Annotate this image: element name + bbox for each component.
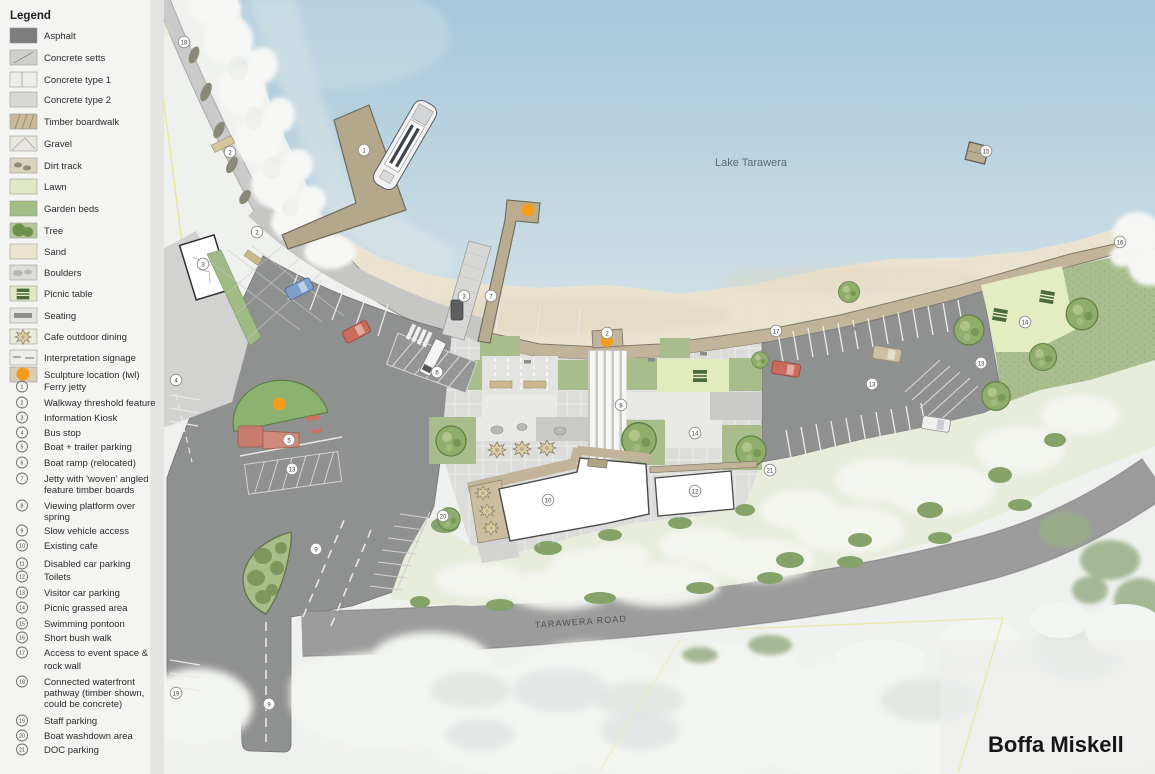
svg-text:Picnic table: Picnic table [44, 289, 93, 300]
svg-text:Ferry jetty: Ferry jetty [44, 382, 86, 393]
svg-text:Bus stop: Bus stop [44, 428, 81, 439]
svg-text:13: 13 [869, 383, 876, 389]
svg-text:17: 17 [19, 651, 25, 657]
svg-text:Dirt track: Dirt track [44, 161, 82, 172]
svg-text:Access to event space &: Access to event space & [44, 648, 149, 659]
svg-text:6: 6 [21, 461, 24, 467]
svg-text:15: 15 [983, 150, 990, 156]
svg-text:4: 4 [21, 431, 24, 437]
svg-text:Short bush walk: Short bush walk [44, 633, 112, 644]
svg-text:Boulders: Boulders [44, 268, 82, 279]
svg-text:18: 18 [19, 680, 25, 686]
svg-text:13: 13 [289, 468, 296, 474]
svg-text:3: 3 [21, 416, 24, 422]
svg-text:Boat ramp (relocated): Boat ramp (relocated) [44, 458, 136, 469]
svg-text:11: 11 [19, 562, 24, 568]
svg-text:2: 2 [21, 401, 24, 407]
svg-text:8: 8 [21, 504, 24, 510]
svg-text:Staff parking: Staff parking [44, 716, 97, 727]
svg-text:13: 13 [19, 591, 25, 597]
svg-text:Walkway threshold feature: Walkway threshold feature [44, 398, 156, 409]
svg-text:Visitor car parking: Visitor car parking [44, 588, 120, 599]
svg-text:17: 17 [773, 330, 780, 336]
svg-text:Disabled car parking: Disabled car parking [44, 559, 131, 570]
svg-text:10: 10 [545, 499, 552, 505]
svg-text:18: 18 [181, 41, 188, 47]
svg-text:14: 14 [1022, 321, 1029, 327]
svg-text:rock wall: rock wall [44, 661, 81, 672]
svg-text:9: 9 [21, 529, 24, 535]
svg-text:Sand: Sand [44, 247, 66, 258]
svg-text:Boat washdown area: Boat washdown area [44, 731, 133, 742]
svg-text:spring: spring [44, 512, 70, 523]
svg-text:Lake Tarawera: Lake Tarawera [715, 157, 788, 169]
svg-text:Existing cafe: Existing cafe [44, 541, 98, 552]
svg-text:Interpretation signage: Interpretation signage [44, 353, 136, 364]
svg-text:Legend: Legend [10, 10, 51, 22]
svg-text:14: 14 [692, 432, 699, 438]
svg-text:DOC parking: DOC parking [44, 745, 99, 756]
svg-text:Slow vehicle access: Slow vehicle access [44, 526, 129, 537]
svg-text:Concrete setts: Concrete setts [44, 53, 105, 64]
svg-text:16: 16 [1117, 241, 1124, 247]
svg-text:Asphalt: Asphalt [44, 31, 76, 42]
svg-text:could be concrete): could be concrete) [44, 699, 122, 710]
svg-text:7: 7 [21, 477, 24, 483]
svg-text:Concrete type 2: Concrete type 2 [44, 95, 111, 106]
svg-text:12: 12 [19, 575, 25, 581]
svg-text:1: 1 [21, 385, 24, 391]
svg-text:14: 14 [19, 606, 25, 612]
svg-text:pathway (timber shown,: pathway (timber shown, [44, 688, 144, 699]
svg-text:Boffa Miskell: Boffa Miskell [988, 732, 1124, 757]
svg-text:Tree: Tree [44, 226, 63, 237]
svg-text:Picnic grassed area: Picnic grassed area [44, 603, 128, 614]
svg-text:Garden beds: Garden beds [44, 204, 99, 215]
svg-text:19: 19 [19, 719, 25, 725]
svg-text:Seating: Seating [44, 311, 76, 322]
svg-text:Swimming pontoon: Swimming pontoon [44, 619, 125, 630]
svg-text:Cafe outdoor dining: Cafe outdoor dining [44, 332, 127, 343]
svg-text:Concrete type 1: Concrete type 1 [44, 75, 111, 86]
svg-text:20: 20 [19, 734, 25, 740]
svg-text:feature timber boards: feature timber boards [44, 485, 135, 496]
svg-text:21: 21 [19, 748, 25, 754]
svg-text:13: 13 [978, 362, 985, 368]
svg-text:10: 10 [19, 544, 25, 550]
svg-text:Boat + trailer parking: Boat + trailer parking [44, 442, 132, 453]
svg-text:Lawn: Lawn [44, 182, 67, 193]
svg-text:20: 20 [440, 515, 447, 521]
svg-text:Information Kiosk: Information Kiosk [44, 413, 118, 424]
svg-text:Sculpture location (lwl): Sculpture location (lwl) [44, 370, 140, 381]
svg-text:12: 12 [692, 490, 699, 496]
svg-text:Toilets: Toilets [44, 572, 71, 583]
svg-text:Viewing platform over: Viewing platform over [44, 501, 135, 512]
svg-text:21: 21 [767, 469, 774, 475]
svg-text:5: 5 [21, 445, 24, 451]
svg-text:Timber boardwalk: Timber boardwalk [44, 117, 119, 128]
svg-text:Jetty with 'woven' angled: Jetty with 'woven' angled [44, 474, 149, 485]
svg-text:16: 16 [19, 636, 25, 642]
svg-text:Gravel: Gravel [44, 139, 72, 150]
svg-text:19: 19 [173, 692, 180, 698]
svg-text:Connected waterfront: Connected waterfront [44, 677, 135, 688]
svg-text:15: 15 [19, 622, 25, 628]
